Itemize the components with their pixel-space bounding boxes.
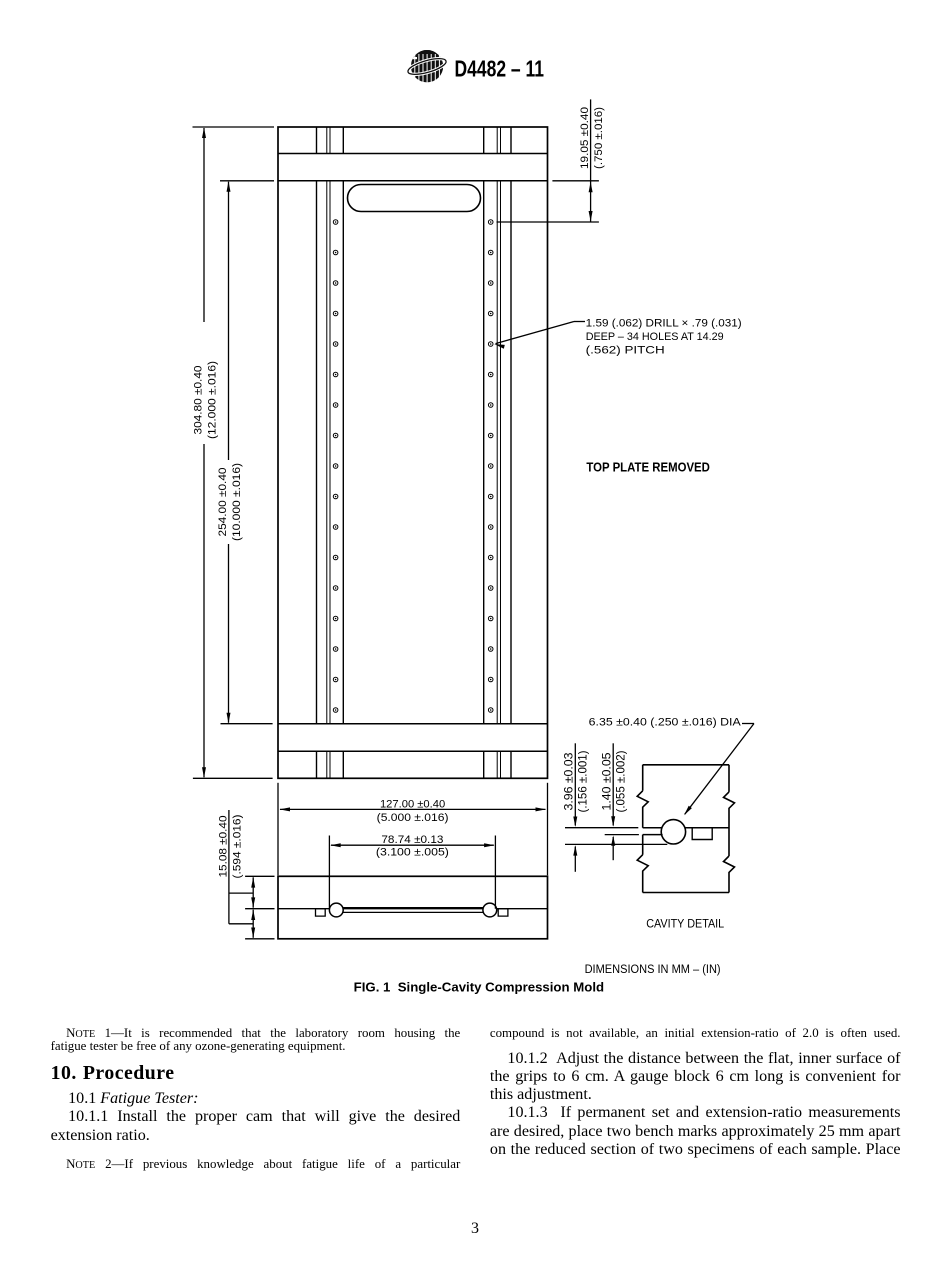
- svg-text:DEEP – 34 HOLES AT 14.29: DEEP – 34 HOLES AT 14.29: [586, 331, 724, 343]
- svg-text:3: 3: [471, 1220, 479, 1237]
- svg-text:3.96 ±0.03: 3.96 ±0.03: [562, 752, 576, 810]
- svg-text:(.750 ±.016): (.750 ±.016): [593, 107, 605, 169]
- svg-text:1.59 (.062) DRILL × .79 (.031): 1.59 (.062) DRILL × .79 (.031): [586, 318, 742, 330]
- svg-text:254.00 ±0.40: 254.00 ±0.40: [217, 468, 229, 537]
- svg-text:CAVITY DETAIL: CAVITY DETAIL: [646, 919, 725, 931]
- svg-text:(5.000 ±.016): (5.000 ±.016): [377, 812, 449, 824]
- svg-text:15.08 ±0.40: 15.08 ±0.40: [217, 816, 229, 878]
- svg-text:(.594 ±.016): (.594 ±.016): [231, 814, 243, 878]
- svg-text:(.156 ±.001): (.156 ±.001): [576, 750, 590, 812]
- svg-text:127.00 ±0.40: 127.00 ±0.40: [380, 799, 445, 811]
- svg-text:D4482 – 11: D4482 – 11: [455, 55, 545, 81]
- svg-text:(10.000 ±.016): (10.000 ±.016): [231, 463, 243, 541]
- svg-text:(3.100 ±.005): (3.100 ±.005): [376, 846, 449, 858]
- svg-text:78.74 ±0.13: 78.74 ±0.13: [381, 834, 443, 846]
- svg-text:304.80 ±0.40: 304.80 ±0.40: [192, 366, 204, 435]
- svg-text:FIG. 1 Single-Cavity Compress: FIG. 1 Single-Cavity Compression Mold: [354, 979, 604, 994]
- svg-text:6.35 ±0.40 (.250 ±.016) DIA: 6.35 ±0.40 (.250 ±.016) DIA: [589, 717, 741, 729]
- svg-text:1.40 ±0.05: 1.40 ±0.05: [600, 752, 614, 810]
- svg-text:(12.000 ±.016): (12.000 ±.016): [207, 361, 219, 439]
- svg-text:TOP PLATE REMOVED: TOP PLATE REMOVED: [586, 461, 710, 475]
- svg-text:DIMENSIONS IN MM – (IN): DIMENSIONS IN MM – (IN): [585, 964, 721, 976]
- svg-text:(.055 ±.002): (.055 ±.002): [614, 750, 628, 812]
- svg-text:(.562) PITCH: (.562) PITCH: [586, 345, 665, 357]
- svg-text:19.05 ±0.40: 19.05 ±0.40: [579, 107, 591, 169]
